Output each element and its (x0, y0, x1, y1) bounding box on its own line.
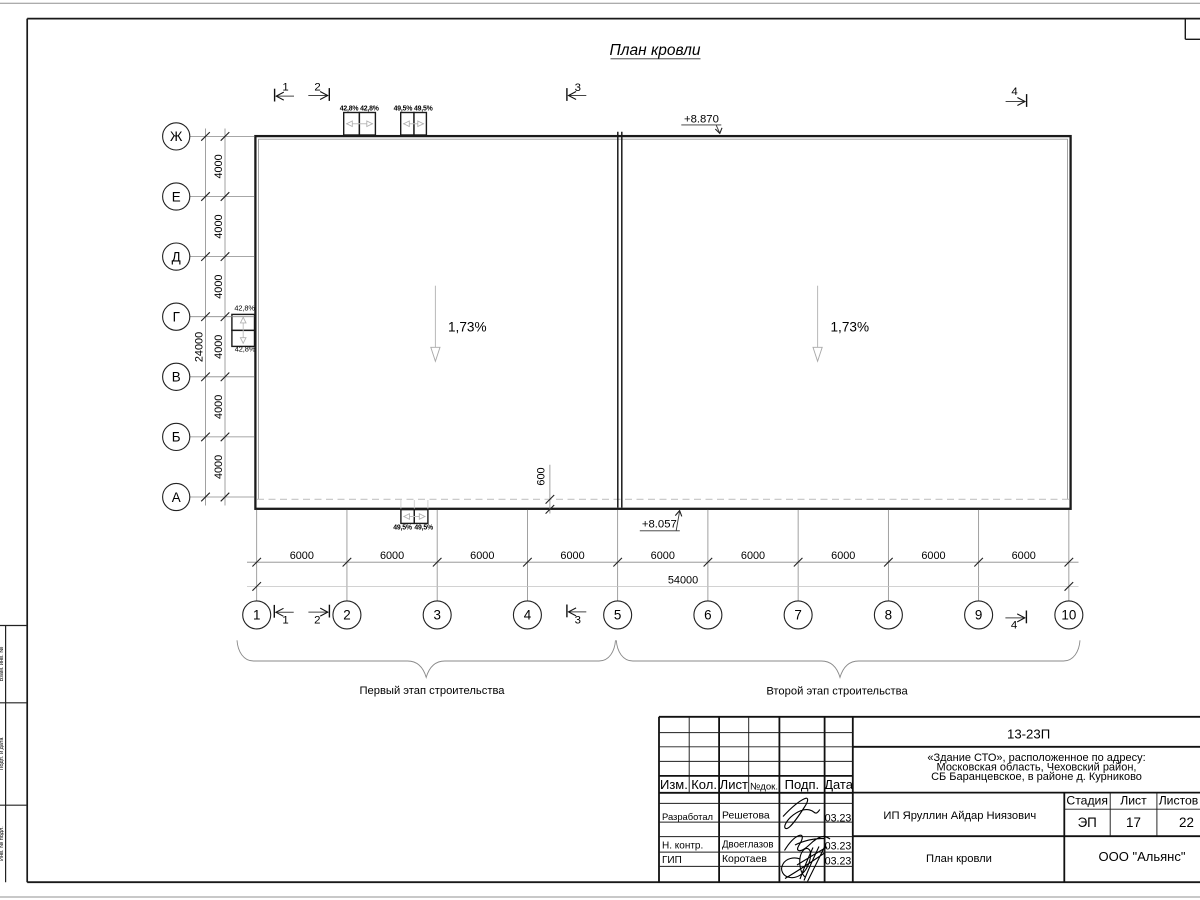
svg-text:Б: Б (172, 430, 181, 445)
svg-text:10: 10 (1061, 608, 1076, 623)
svg-text:2: 2 (314, 614, 320, 626)
svg-text:6000: 6000 (380, 550, 404, 562)
svg-text:3: 3 (433, 608, 440, 623)
svg-text:2: 2 (314, 82, 320, 94)
svg-text:6000: 6000 (831, 550, 855, 562)
svg-text:49,5%: 49,5% (414, 105, 433, 112)
svg-text:В: В (172, 370, 181, 385)
svg-text:9: 9 (975, 608, 982, 623)
svg-text:6000: 6000 (470, 550, 494, 562)
svg-text:3: 3 (575, 82, 581, 94)
svg-text:1,73%: 1,73% (448, 320, 487, 335)
svg-text:4000: 4000 (213, 455, 225, 479)
svg-text:600: 600 (536, 467, 548, 485)
svg-text:6000: 6000 (741, 550, 765, 562)
svg-text:42,8%: 42,8% (234, 304, 255, 313)
svg-text:42,8%: 42,8% (235, 345, 256, 354)
svg-text:4: 4 (1011, 620, 1017, 632)
svg-text:Н. контр.: Н. контр. (662, 841, 703, 852)
svg-text:Коротаев: Коротаев (722, 854, 767, 865)
svg-text:6000: 6000 (560, 550, 584, 562)
svg-text:4: 4 (1011, 86, 1017, 98)
svg-text:Г: Г (173, 310, 180, 325)
svg-text:49,5%: 49,5% (394, 105, 413, 112)
svg-text:+8.870: +8.870 (684, 113, 719, 125)
svg-text:1: 1 (282, 82, 288, 94)
svg-text:42,8%: 42,8% (360, 105, 379, 112)
svg-text:7: 7 (794, 608, 801, 623)
svg-text:Подп.: Подп. (785, 777, 820, 792)
svg-text:42,8%: 42,8% (340, 105, 359, 112)
svg-text:Решетова: Решетова (722, 811, 770, 822)
svg-text:Е: Е (172, 189, 181, 204)
svg-text:5: 5 (614, 608, 621, 623)
svg-text:Стадия: Стадия (1066, 794, 1108, 808)
svg-text:4000: 4000 (213, 214, 225, 238)
svg-text:ООО "Альянс": ООО "Альянс" (1099, 849, 1186, 864)
svg-text:03.23: 03.23 (825, 841, 852, 853)
svg-text:4: 4 (524, 608, 532, 623)
svg-text:6000: 6000 (290, 550, 314, 562)
svg-text:6000: 6000 (1012, 550, 1036, 562)
svg-text:1,73%: 1,73% (831, 320, 870, 335)
svg-text:13-23П: 13-23П (1007, 727, 1050, 742)
svg-text:03.23: 03.23 (825, 855, 852, 867)
svg-text:4000: 4000 (213, 335, 225, 359)
svg-text:№док.: №док. (750, 782, 778, 793)
svg-text:17: 17 (1126, 815, 1141, 830)
svg-text:Дата: Дата (824, 777, 854, 792)
svg-text:8: 8 (885, 608, 892, 623)
svg-text:СБ Баранцевское, в районе д. К: СБ Баранцевское, в районе д. Курниково (931, 771, 1142, 783)
svg-text:Лист: Лист (720, 777, 748, 792)
svg-text:Листов: Листов (1159, 794, 1199, 808)
svg-text:Ж: Ж (170, 129, 183, 144)
svg-text:1: 1 (253, 608, 260, 623)
svg-text:4000: 4000 (213, 154, 225, 178)
svg-text:Лист: Лист (1120, 794, 1147, 808)
svg-text:1: 1 (282, 614, 288, 626)
svg-text:Инв. № подл.: Инв. № подл. (0, 826, 5, 861)
svg-text:6000: 6000 (651, 550, 675, 562)
svg-text:Кол.: Кол. (691, 777, 717, 792)
svg-text:ИП Яруллин Айдар Ниязович: ИП Яруллин Айдар Ниязович (883, 810, 1036, 822)
svg-text:54000: 54000 (668, 575, 698, 587)
svg-text:ГИП: ГИП (662, 855, 682, 866)
svg-text:03.23: 03.23 (825, 812, 852, 824)
svg-text:22: 22 (1179, 815, 1194, 830)
svg-text:4000: 4000 (213, 275, 225, 299)
svg-text:Второй этап строительства: Второй этап строительства (766, 686, 908, 698)
svg-text:Двоеглазов: Двоеглазов (722, 840, 774, 851)
svg-text:Изм.: Изм. (660, 777, 688, 792)
svg-text:Взам. инв. №: Взам. инв. № (0, 647, 5, 682)
svg-text:План кровли: План кровли (926, 853, 992, 865)
svg-text:Д: Д (172, 249, 181, 264)
svg-text:+8.057: +8.057 (642, 518, 677, 530)
svg-text:2: 2 (343, 608, 350, 623)
svg-text:49,5%: 49,5% (414, 525, 433, 532)
svg-text:24000: 24000 (194, 332, 206, 362)
svg-text:49,5%: 49,5% (393, 525, 412, 532)
svg-text:6000: 6000 (921, 550, 945, 562)
svg-text:Разработал: Разработал (662, 811, 713, 822)
svg-text:Подп. и дата: Подп. и дата (0, 737, 5, 771)
svg-text:3: 3 (575, 614, 581, 626)
svg-text:Первый этап строительства: Первый этап строительства (359, 685, 505, 697)
svg-text:План кровли: План кровли (610, 42, 701, 59)
svg-text:6: 6 (704, 608, 711, 623)
svg-text:ЭП: ЭП (1078, 815, 1097, 830)
svg-text:4000: 4000 (213, 395, 225, 419)
svg-text:А: А (172, 490, 181, 505)
